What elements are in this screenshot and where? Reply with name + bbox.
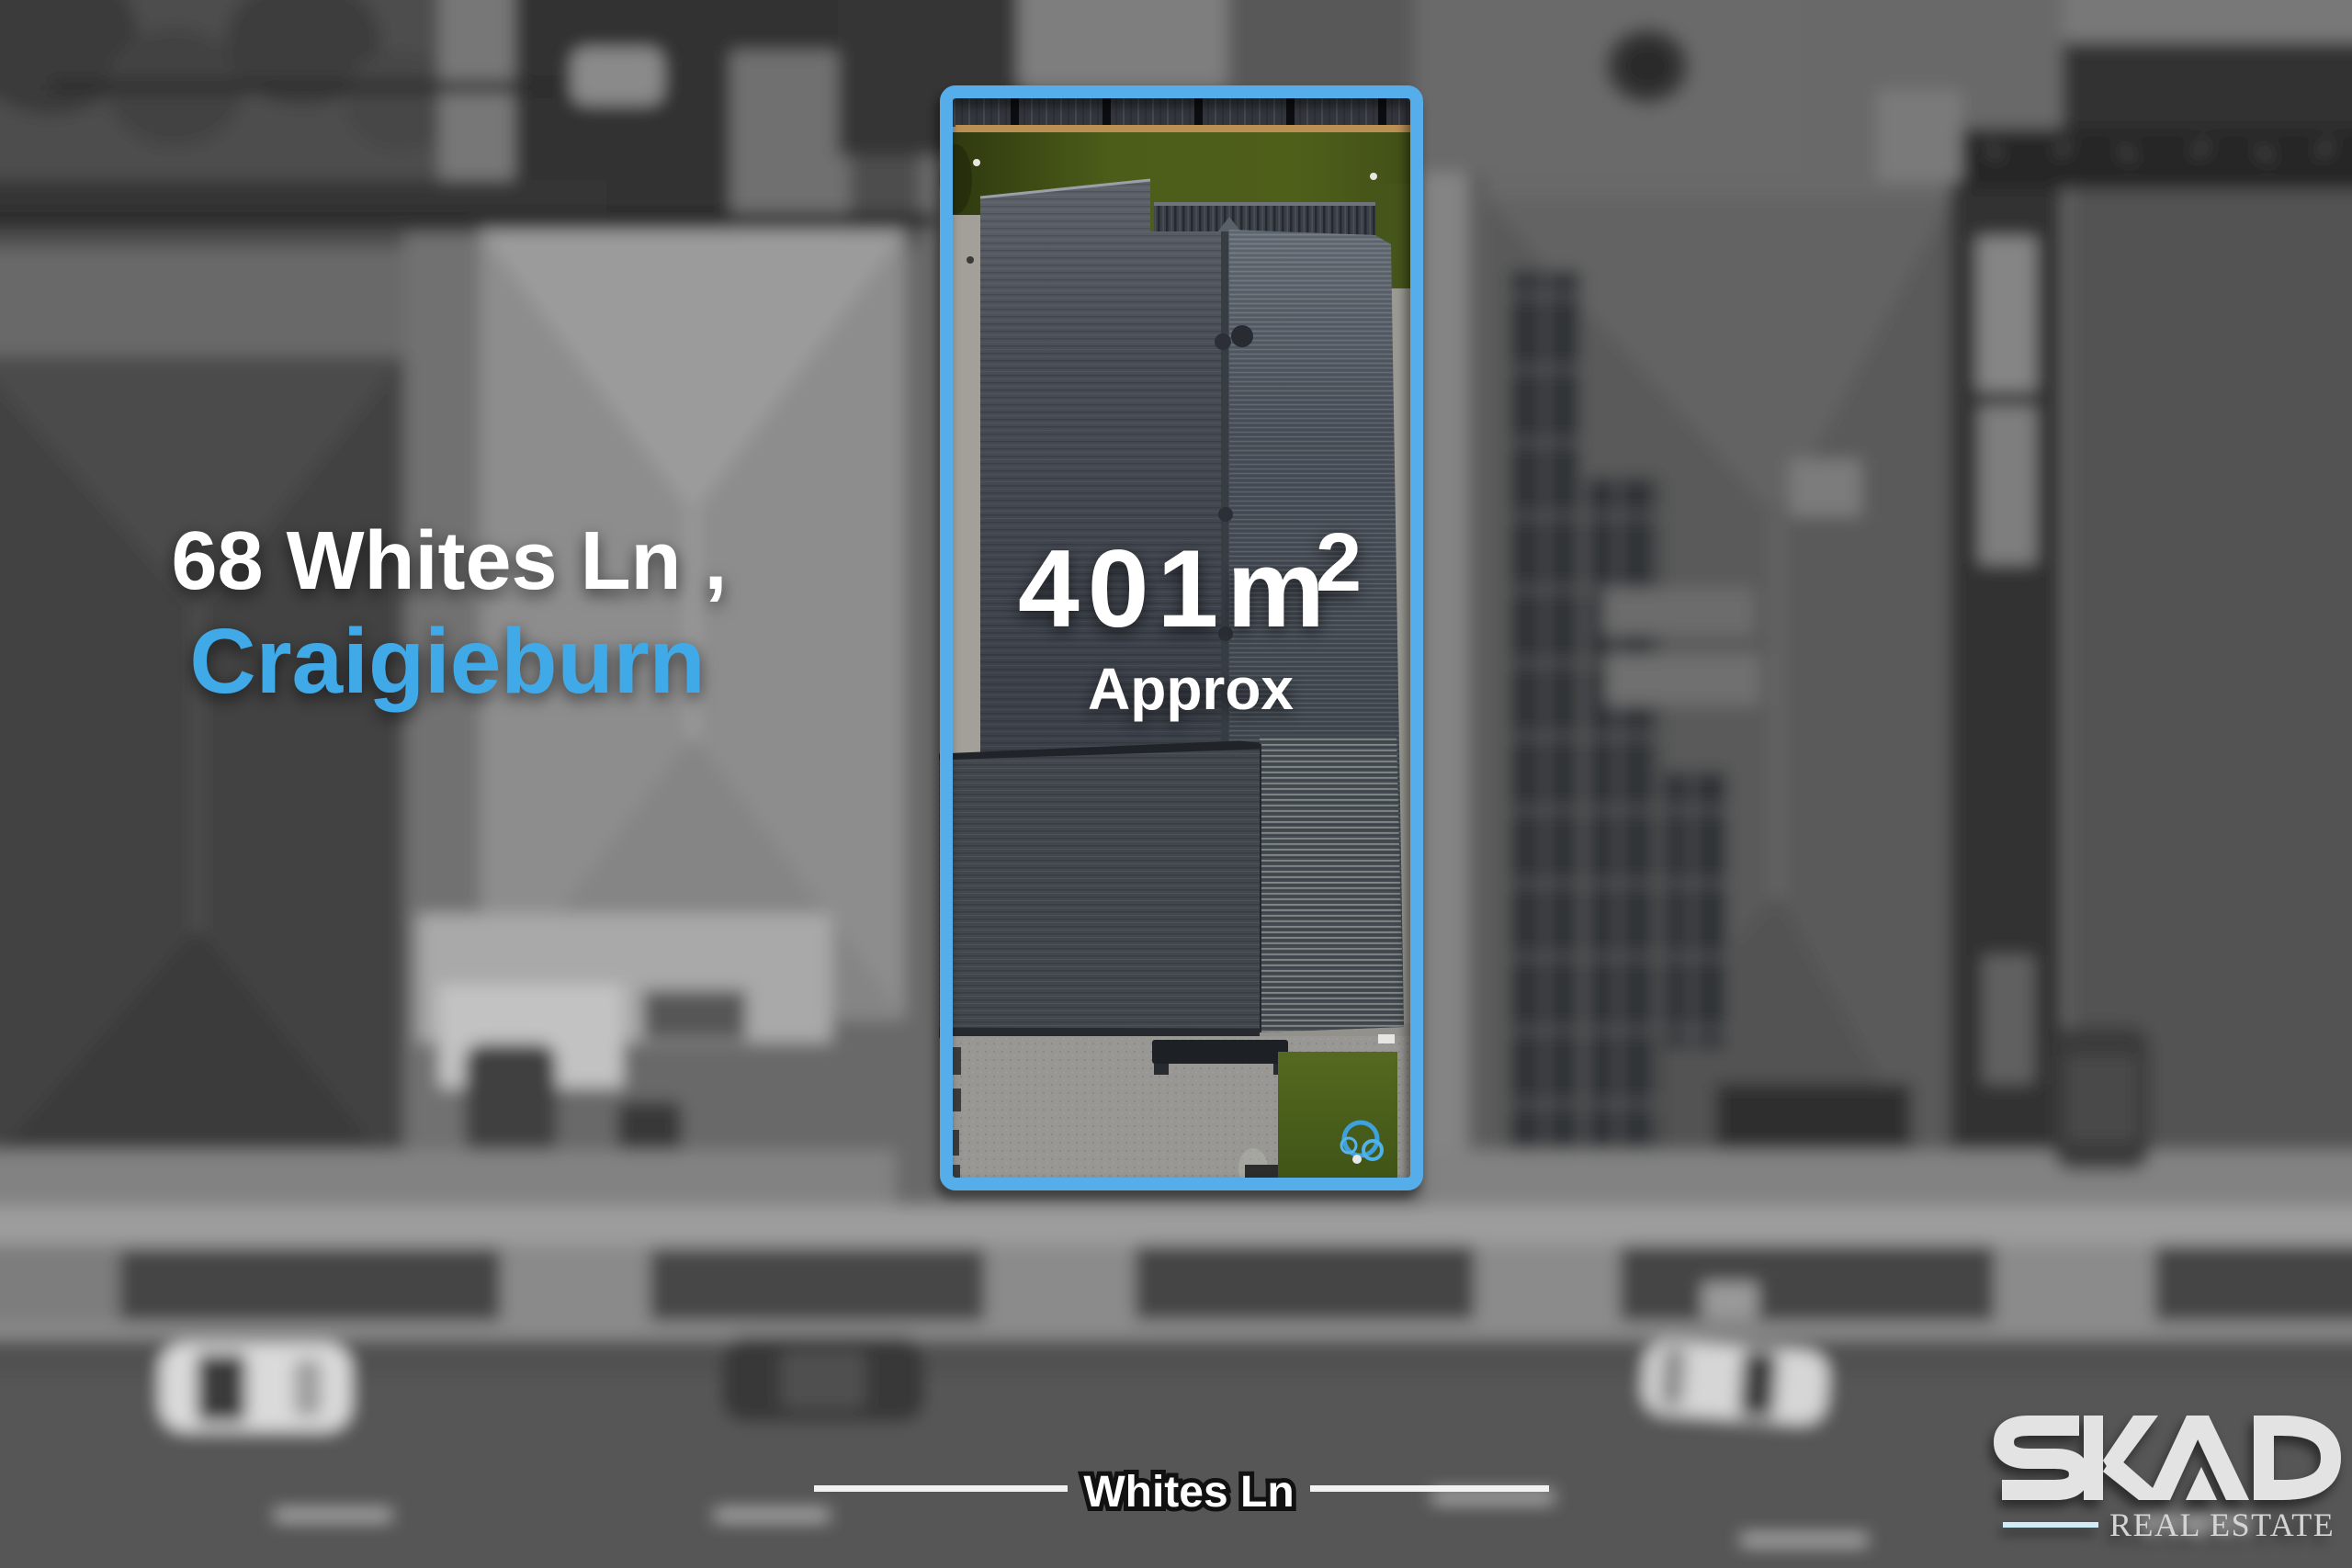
svg-text:Approx: Approx xyxy=(1088,656,1294,722)
svg-text:REAL ESTATE: REAL ESTATE xyxy=(2109,1506,2335,1543)
svg-text:68 Whites Ln ,: 68 Whites Ln , xyxy=(171,515,727,607)
svg-text:401m: 401m xyxy=(1018,527,1333,650)
svg-text:2: 2 xyxy=(1316,517,1362,609)
svg-text:Whites Ln: Whites Ln xyxy=(1083,1468,1294,1517)
svg-text:Craigieburn: Craigieburn xyxy=(189,610,705,713)
